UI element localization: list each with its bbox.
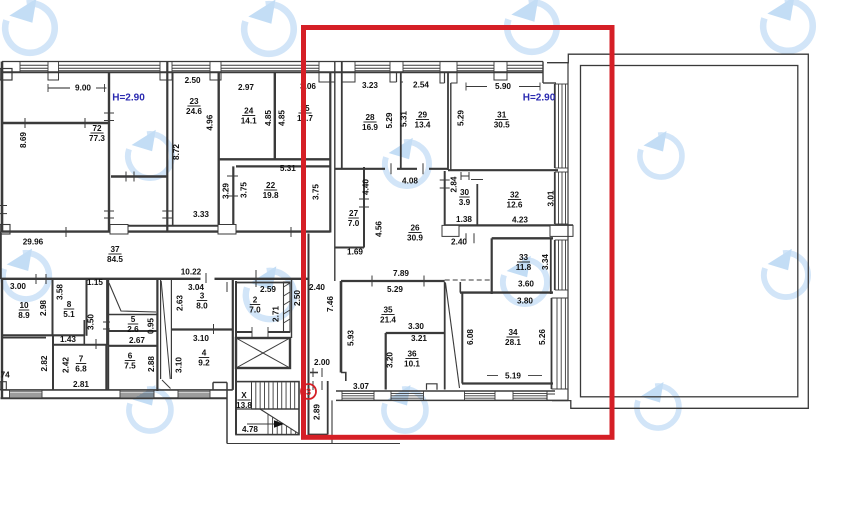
svg-text:5.31: 5.31 xyxy=(280,164,296,173)
svg-text:5: 5 xyxy=(131,315,136,324)
svg-text:4.08: 4.08 xyxy=(402,177,418,186)
svg-text:1.38: 1.38 xyxy=(456,215,472,224)
svg-text:2.42: 2.42 xyxy=(62,357,71,373)
svg-text:23: 23 xyxy=(189,97,199,106)
svg-text:5.90: 5.90 xyxy=(495,82,511,91)
svg-text:26: 26 xyxy=(410,224,420,233)
svg-text:4.56: 4.56 xyxy=(375,221,384,237)
svg-text:3: 3 xyxy=(200,292,205,301)
svg-text:3: 3 xyxy=(306,387,311,397)
svg-text:3.34: 3.34 xyxy=(541,254,550,270)
svg-text:32: 32 xyxy=(510,191,520,200)
svg-text:14.1: 14.1 xyxy=(241,117,257,126)
svg-text:3.01: 3.01 xyxy=(547,190,556,206)
svg-text:5.31: 5.31 xyxy=(400,111,409,127)
svg-text:37: 37 xyxy=(110,245,120,254)
svg-text:2.88: 2.88 xyxy=(147,356,156,372)
svg-text:22: 22 xyxy=(266,181,276,190)
svg-text:27: 27 xyxy=(349,209,359,218)
svg-text:29: 29 xyxy=(418,111,428,120)
svg-text:3.00: 3.00 xyxy=(10,282,26,291)
svg-text:35: 35 xyxy=(383,306,393,315)
svg-text:24: 24 xyxy=(244,107,254,116)
svg-text:3.10: 3.10 xyxy=(175,357,184,373)
svg-text:H=2.90: H=2.90 xyxy=(112,93,145,104)
svg-text:6: 6 xyxy=(128,352,133,361)
svg-text:3.80: 3.80 xyxy=(517,296,533,305)
svg-text:16.9: 16.9 xyxy=(362,123,378,132)
svg-text:12.6: 12.6 xyxy=(507,201,523,210)
svg-text:13.4: 13.4 xyxy=(415,121,431,130)
svg-text:5.29: 5.29 xyxy=(385,112,394,128)
svg-text:2.84: 2.84 xyxy=(450,176,459,192)
svg-text:2.82: 2.82 xyxy=(40,355,49,371)
svg-text:4.40: 4.40 xyxy=(362,179,371,195)
svg-text:10: 10 xyxy=(19,301,29,310)
svg-text:84.5: 84.5 xyxy=(107,255,123,264)
svg-text:2.63: 2.63 xyxy=(176,295,185,311)
svg-text:3.04: 3.04 xyxy=(188,283,204,292)
svg-text:2.98: 2.98 xyxy=(39,300,48,316)
svg-text:5.19: 5.19 xyxy=(505,372,521,381)
svg-text:2.67: 2.67 xyxy=(129,336,145,345)
svg-text:10.1: 10.1 xyxy=(404,360,420,369)
svg-text:3.21: 3.21 xyxy=(411,334,427,343)
svg-text:3.75: 3.75 xyxy=(312,184,321,200)
svg-text:3.75: 3.75 xyxy=(240,182,249,198)
svg-text:30: 30 xyxy=(460,188,470,197)
svg-text:3.30: 3.30 xyxy=(408,322,424,331)
svg-text:3.29: 3.29 xyxy=(222,183,231,199)
svg-text:5.29: 5.29 xyxy=(387,285,403,294)
svg-text:4.96: 4.96 xyxy=(206,114,215,130)
svg-text:2.40: 2.40 xyxy=(309,283,325,292)
svg-text:24.6: 24.6 xyxy=(186,107,202,116)
svg-text:33: 33 xyxy=(519,253,529,262)
svg-text:3.58: 3.58 xyxy=(56,284,65,300)
svg-text:21.4: 21.4 xyxy=(380,316,396,325)
svg-text:2.71: 2.71 xyxy=(272,306,281,322)
svg-text:H=2.90: H=2.90 xyxy=(523,93,556,104)
svg-text:3.9: 3.9 xyxy=(459,198,471,207)
svg-text:5.1: 5.1 xyxy=(63,310,75,319)
svg-text:6.08: 6.08 xyxy=(466,329,475,345)
svg-text:3.23: 3.23 xyxy=(362,81,378,90)
svg-text:8.69: 8.69 xyxy=(19,132,28,148)
svg-text:0.95: 0.95 xyxy=(147,318,156,334)
svg-text:36: 36 xyxy=(407,350,417,359)
svg-text:2: 2 xyxy=(253,296,258,305)
svg-text:2.97: 2.97 xyxy=(238,83,254,92)
svg-text:3.07: 3.07 xyxy=(353,382,369,391)
svg-text:13.8: 13.8 xyxy=(236,401,252,410)
svg-text:19.8: 19.8 xyxy=(263,191,279,200)
svg-text:8.72: 8.72 xyxy=(172,144,181,160)
svg-text:4.85: 4.85 xyxy=(264,110,273,126)
svg-text:2.00: 2.00 xyxy=(314,358,330,367)
svg-text:2.40: 2.40 xyxy=(451,238,467,247)
svg-text:2.81: 2.81 xyxy=(73,380,89,389)
svg-text:28: 28 xyxy=(365,113,375,122)
svg-text:3.20: 3.20 xyxy=(386,352,395,368)
svg-text:28.1: 28.1 xyxy=(505,338,521,347)
svg-text:1.43: 1.43 xyxy=(60,335,76,344)
svg-text:9.00: 9.00 xyxy=(75,84,91,93)
svg-text:30.5: 30.5 xyxy=(494,121,510,130)
svg-text:3.10: 3.10 xyxy=(193,334,209,343)
svg-text:3.60: 3.60 xyxy=(518,280,534,289)
svg-text:4.78: 4.78 xyxy=(242,425,258,434)
svg-text:8: 8 xyxy=(67,300,72,309)
svg-text:2.50: 2.50 xyxy=(185,76,201,85)
svg-text:72: 72 xyxy=(92,124,102,133)
svg-text:6.8: 6.8 xyxy=(75,365,87,374)
svg-text:7.0: 7.0 xyxy=(249,306,261,315)
svg-text:29.96: 29.96 xyxy=(23,238,44,247)
svg-text:.74: .74 xyxy=(0,371,10,380)
svg-text:77.3: 77.3 xyxy=(89,134,105,143)
svg-text:7.5: 7.5 xyxy=(124,362,136,371)
svg-text:2.6: 2.6 xyxy=(127,325,139,334)
svg-text:5.26: 5.26 xyxy=(538,329,547,345)
svg-text:3.50: 3.50 xyxy=(87,314,96,330)
svg-text:1.15: 1.15 xyxy=(87,278,103,287)
svg-text:7.46: 7.46 xyxy=(326,296,335,312)
svg-text:5.93: 5.93 xyxy=(347,330,356,346)
svg-text:34: 34 xyxy=(508,328,518,337)
svg-text:11.8: 11.8 xyxy=(516,263,532,272)
svg-text:2.59: 2.59 xyxy=(260,285,276,294)
svg-text:2.54: 2.54 xyxy=(413,81,429,90)
svg-text:2.50: 2.50 xyxy=(293,290,302,306)
svg-text:4.85: 4.85 xyxy=(278,110,287,126)
svg-text:4: 4 xyxy=(202,349,207,358)
svg-text:30.9: 30.9 xyxy=(407,234,423,243)
svg-text:7: 7 xyxy=(79,355,84,364)
svg-text:7.89: 7.89 xyxy=(393,269,409,278)
svg-text:4.23: 4.23 xyxy=(512,216,528,225)
svg-text:7.0: 7.0 xyxy=(348,219,360,228)
svg-text:X: X xyxy=(241,391,247,400)
svg-text:8.0: 8.0 xyxy=(196,302,208,311)
svg-text:31: 31 xyxy=(497,111,507,120)
svg-text:2.89: 2.89 xyxy=(313,404,322,420)
svg-text:9.2: 9.2 xyxy=(198,359,210,368)
svg-text:8.9: 8.9 xyxy=(18,311,30,320)
svg-text:3.33: 3.33 xyxy=(193,210,209,219)
svg-text:10.22: 10.22 xyxy=(181,268,202,277)
svg-text:1.69: 1.69 xyxy=(347,248,363,257)
svg-text:5.29: 5.29 xyxy=(457,110,466,126)
